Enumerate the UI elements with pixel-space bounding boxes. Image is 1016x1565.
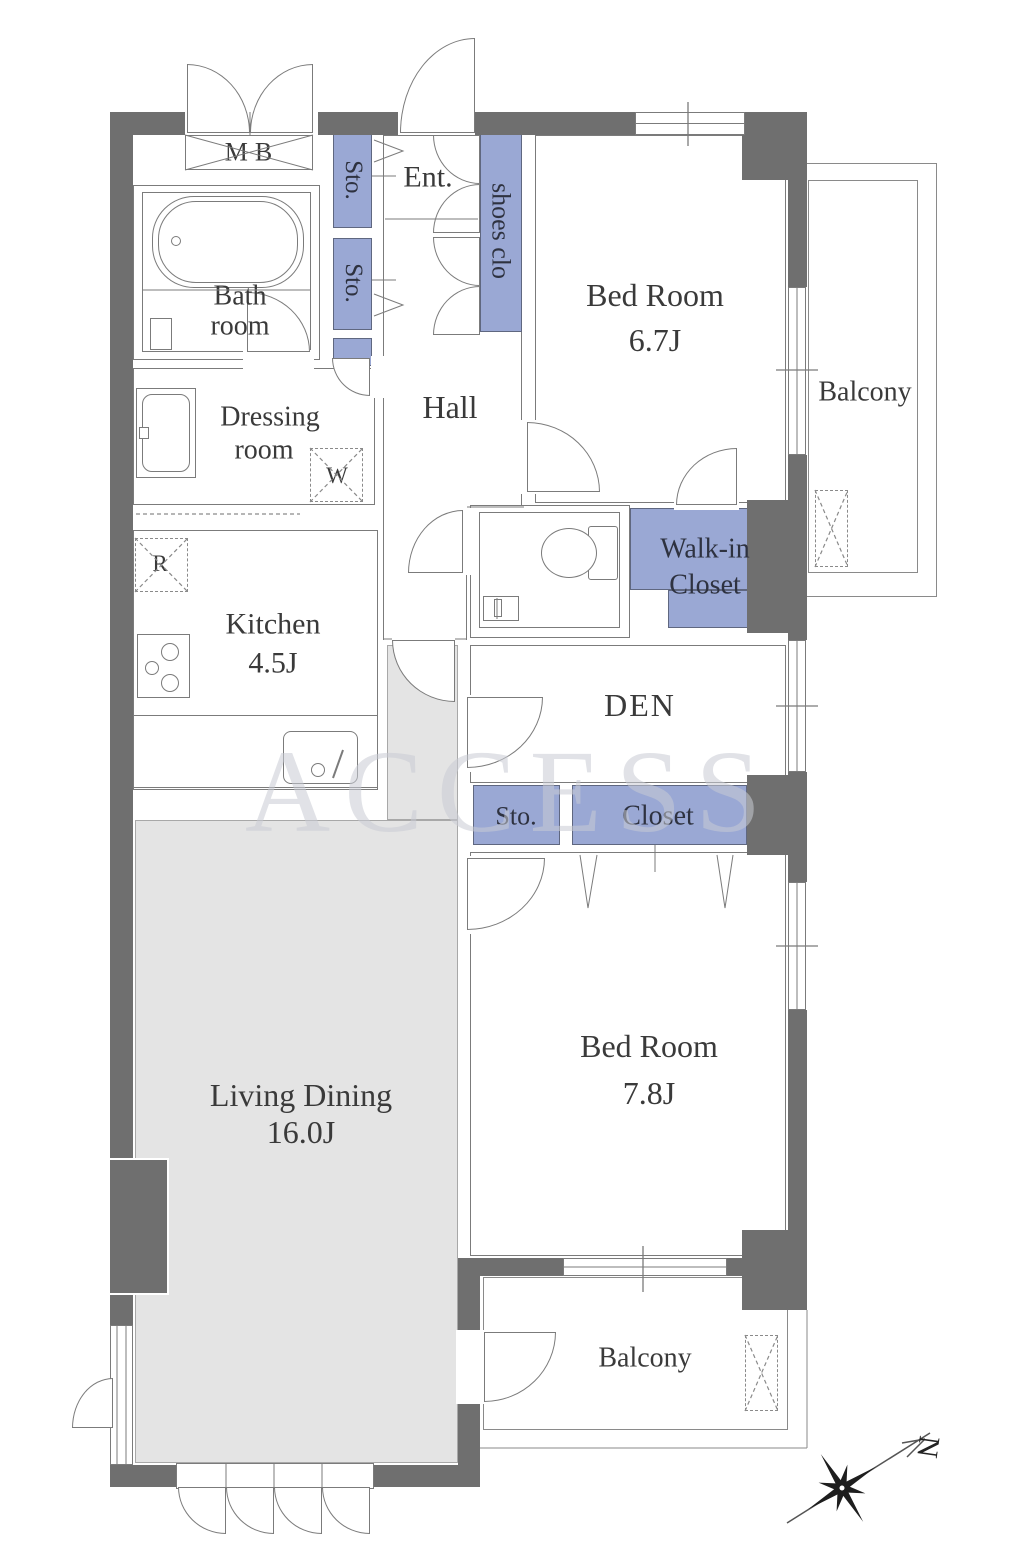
opening-dressing-door <box>371 356 386 398</box>
wall-right-wic-block <box>747 500 807 633</box>
floor-plan: MB Ent. Sto. Sto. shoes clo Bath room Be… <box>0 0 1016 1565</box>
entrance-door <box>400 38 475 133</box>
storage-label-3: Sto. <box>495 802 536 829</box>
wic-label-1: Walk-in <box>660 534 750 563</box>
stove-burner-1 <box>161 643 179 661</box>
bath-fitting <box>150 318 172 350</box>
wall-right-4 <box>788 1010 807 1258</box>
bathtub-jet <box>171 236 181 246</box>
kitchen-label: Kitchen <box>226 608 321 640</box>
window-bedroom2-east <box>788 882 806 1010</box>
bathroom-label-1: Bath <box>214 281 267 310</box>
bedroom1-label: Bed Room <box>586 279 724 313</box>
refrigerator-label: R <box>152 552 167 576</box>
ac-space-east <box>815 490 848 567</box>
compass-north-label: N <box>910 1434 946 1460</box>
window-bedroom2-south <box>563 1258 727 1276</box>
storage-label-2: Sto. <box>340 263 366 303</box>
stove-burner-2 <box>145 661 159 675</box>
wall-corner-ne <box>742 112 807 180</box>
window-ld-west <box>110 1325 133 1465</box>
living-dining-area: 16.0J <box>267 1116 335 1150</box>
bedroom2-label: Bed Room <box>580 1030 718 1064</box>
window-bedroom1-east <box>788 287 806 455</box>
ld-west-window-door <box>72 1378 113 1428</box>
storage-label-1: Sto. <box>340 160 366 200</box>
dressing-label-2: room <box>234 435 293 464</box>
compass-rose: N <box>787 1433 946 1523</box>
kitchen-area: 4.5J <box>248 647 297 679</box>
window-bedroom1-top <box>635 112 745 135</box>
meter-box-label: MB <box>225 138 279 165</box>
mb-door-left <box>187 64 250 133</box>
sink-drain <box>311 763 325 777</box>
washbasin-bowl <box>142 394 190 472</box>
ld-south-door-2 <box>226 1487 274 1534</box>
ld-south-door-1 <box>178 1487 226 1534</box>
wall-left-pillar <box>110 1160 167 1293</box>
shoes-closet-label: shoes clo <box>487 183 514 279</box>
wall-bed2-bottom-left <box>458 1258 563 1276</box>
bathroom-label-2: room <box>210 311 269 340</box>
bedroom1-area: 6.7J <box>629 324 681 358</box>
toilet-hand-basin-tap <box>494 599 502 617</box>
ld-south-door-4 <box>322 1487 370 1534</box>
ld-south-door-3 <box>274 1487 322 1534</box>
hall-label: Hall <box>422 391 477 425</box>
entrance-label: Ent. <box>403 161 452 193</box>
mb-door-right <box>250 64 313 133</box>
dressing-label-1: Dressing <box>220 402 320 431</box>
bedroom2-area: 7.8J <box>623 1077 675 1111</box>
wall-right-1 <box>788 180 807 287</box>
window-den-east <box>788 640 806 772</box>
balcony-south-label: Balcony <box>598 1343 691 1372</box>
toilet-bowl <box>541 528 597 578</box>
wall-right-closet-block <box>747 775 807 855</box>
balcony-east-label: Balcony <box>818 377 911 406</box>
den-label: DEN <box>604 689 676 723</box>
washer-label: W <box>326 464 348 488</box>
washbasin-tap <box>139 427 149 439</box>
closet-label: Closet <box>622 801 694 830</box>
wic-label-2: Closet <box>669 570 741 599</box>
opening-balcony-door <box>456 1330 484 1404</box>
ac-space-south <box>745 1335 778 1411</box>
opening-bath-door <box>243 350 314 372</box>
sill-ld-south <box>176 1463 374 1489</box>
opening-toilet-door <box>462 508 474 575</box>
stove-burner-3 <box>161 674 179 692</box>
living-dining-label: Living Dining <box>210 1079 392 1113</box>
